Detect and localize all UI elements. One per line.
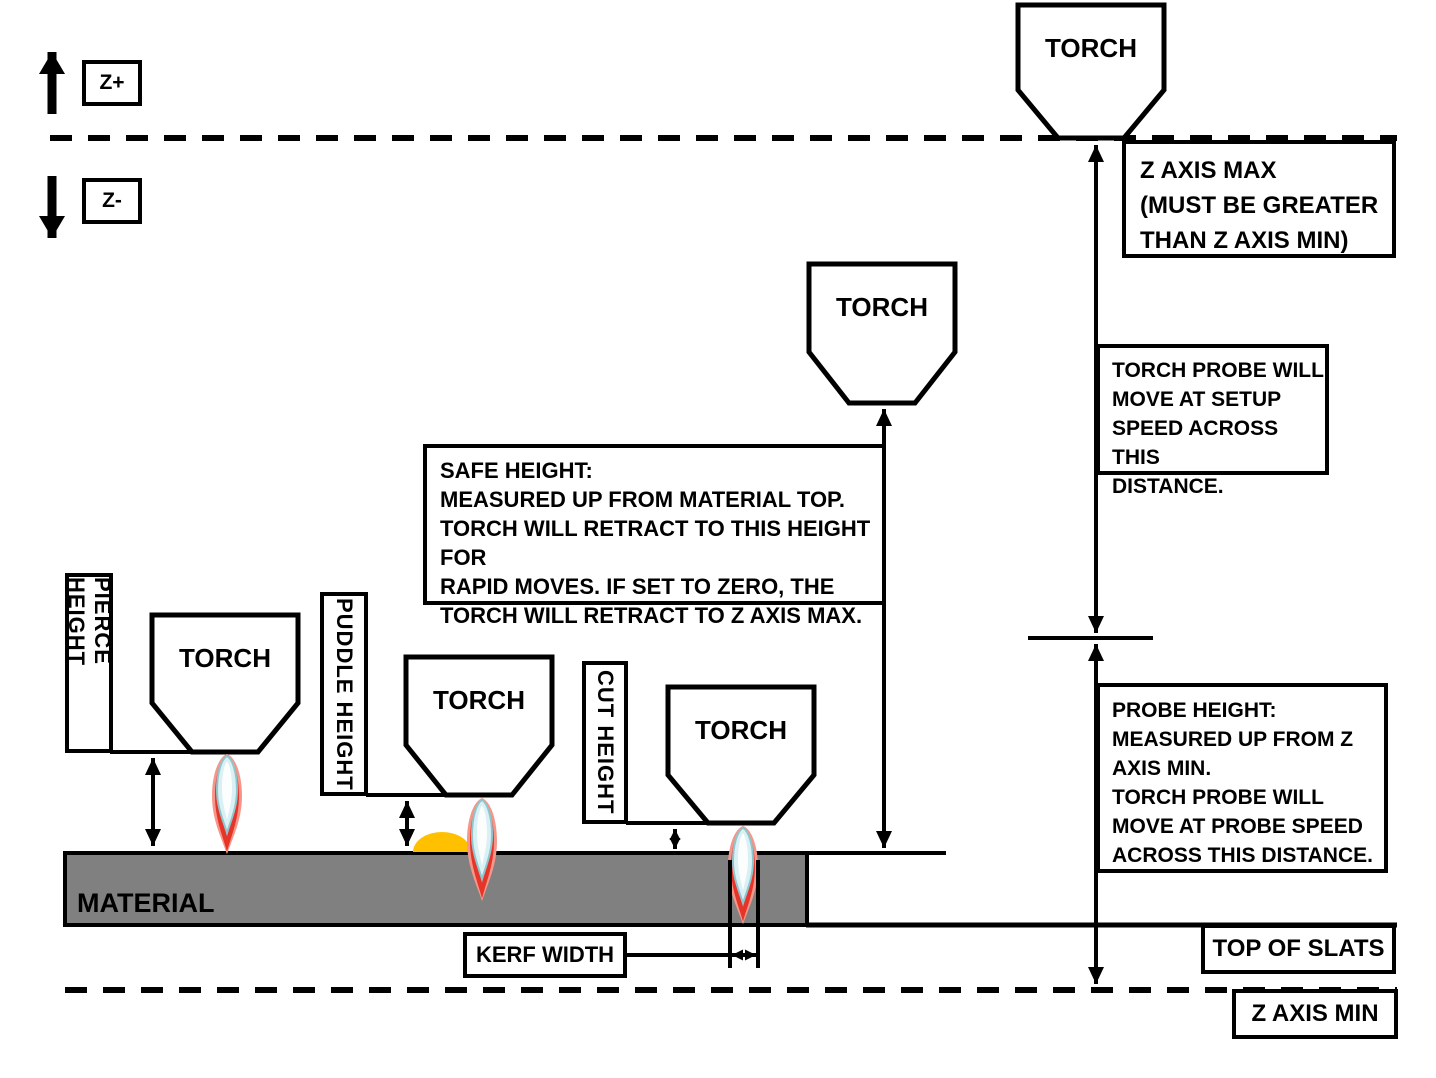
torch-safe-height-shape — [809, 264, 955, 403]
top-of-slats-label: TOP OF SLATS — [1212, 935, 1384, 963]
kerf-width-label: KERF WIDTH — [476, 942, 614, 968]
cut-height-label: CUT HEIGHT — [592, 670, 618, 814]
torch-height-diagram: Z+ Z- TORCH TORCH TORCH TORCH TORCH PIER… — [0, 0, 1436, 1078]
torch-puddle-shape — [406, 657, 552, 795]
torch-pierce-shape — [152, 615, 298, 752]
torch-cut-label: TORCH — [666, 715, 816, 746]
cut-height-label-box: CUT HEIGHT — [582, 661, 628, 824]
safe-height-callout: SAFE HEIGHT: MEASURED UP FROM MATERIAL T… — [423, 444, 886, 605]
pierce-height-label: PIERCE HEIGHT — [63, 577, 115, 749]
molten-puddle — [413, 832, 471, 852]
top-of-slats-label-box: TOP OF SLATS — [1201, 924, 1396, 974]
torch-safe-label: TORCH — [807, 292, 957, 323]
pierce-flame-icon — [212, 754, 242, 854]
torch-probe-callout: TORCH PROBE WILL MOVE AT SETUP SPEED ACR… — [1096, 344, 1329, 475]
probe-height-callout: PROBE HEIGHT: MEASURED UP FROM Z AXIS MI… — [1096, 683, 1388, 873]
puddle-height-label-box: PUDDLE HEIGHT — [320, 592, 368, 796]
puddle-height-label: PUDDLE HEIGHT — [331, 598, 357, 791]
torch-pierce-label: TORCH — [150, 643, 300, 674]
torch-z-max-label: TORCH — [1016, 33, 1166, 64]
pierce-height-label-box: PIERCE HEIGHT — [65, 573, 113, 753]
z-plus-label-box: Z+ — [82, 60, 142, 106]
z-axis-min-label-box: Z AXIS MIN — [1232, 989, 1398, 1039]
z-axis-min-label: Z AXIS MIN — [1251, 1000, 1378, 1028]
z-minus-label-box: Z- — [82, 178, 142, 224]
torch-cut-shape — [668, 687, 814, 823]
z-axis-max-callout: Z AXIS MAX (MUST BE GREATER THAN Z AXIS … — [1122, 140, 1396, 258]
torch-z-max-shape — [1018, 5, 1164, 138]
z-minus-label: Z- — [102, 189, 122, 213]
kerf-width-label-box: KERF WIDTH — [463, 932, 627, 978]
material-label: MATERIAL — [77, 888, 214, 919]
torch-puddle-label: TORCH — [404, 685, 554, 716]
z-plus-label: Z+ — [99, 71, 124, 95]
